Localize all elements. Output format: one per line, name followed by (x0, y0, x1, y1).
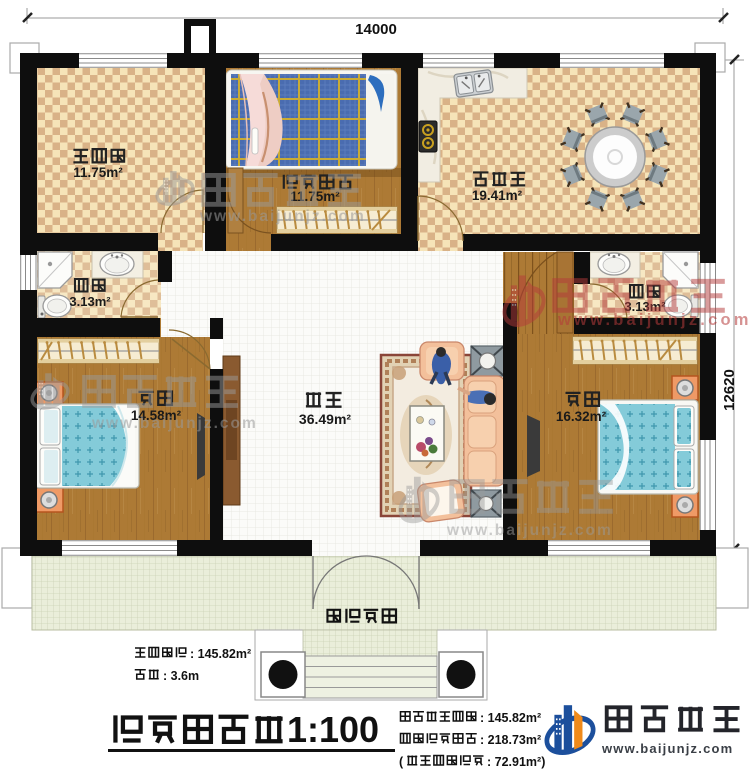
svg-text:19.41m²: 19.41m² (472, 188, 523, 203)
svg-text:: 3.6m: : 3.6m (163, 669, 199, 683)
svg-text:11.75m²: 11.75m² (73, 165, 123, 180)
svg-text:: 72.91m²): : 72.91m²) (487, 755, 545, 769)
svg-text:www.baijunjz.com: www.baijunjz.com (601, 741, 733, 756)
svg-text:www.baijunjz.com: www.baijunjz.com (199, 208, 366, 225)
svg-text:14000: 14000 (355, 21, 397, 38)
svg-text:www.baijunjz.com: www.baijunjz.com (91, 415, 258, 432)
svg-text:: 145.82m²: : 145.82m² (190, 647, 251, 661)
svg-text:1:100: 1:100 (287, 709, 379, 750)
svg-text:16.32m²: 16.32m² (556, 409, 607, 424)
svg-text:www.baijunjz.com: www.baijunjz.com (557, 311, 750, 329)
svg-text:: 145.82m²: : 145.82m² (480, 711, 541, 725)
svg-text:36.49m²: 36.49m² (299, 411, 351, 427)
svg-text:www.baijunjz.com: www.baijunjz.com (446, 522, 613, 539)
svg-text:: 218.73m²: : 218.73m² (480, 733, 541, 747)
svg-text:3.13m²: 3.13m² (69, 294, 111, 309)
svg-text:12620: 12620 (721, 369, 738, 411)
